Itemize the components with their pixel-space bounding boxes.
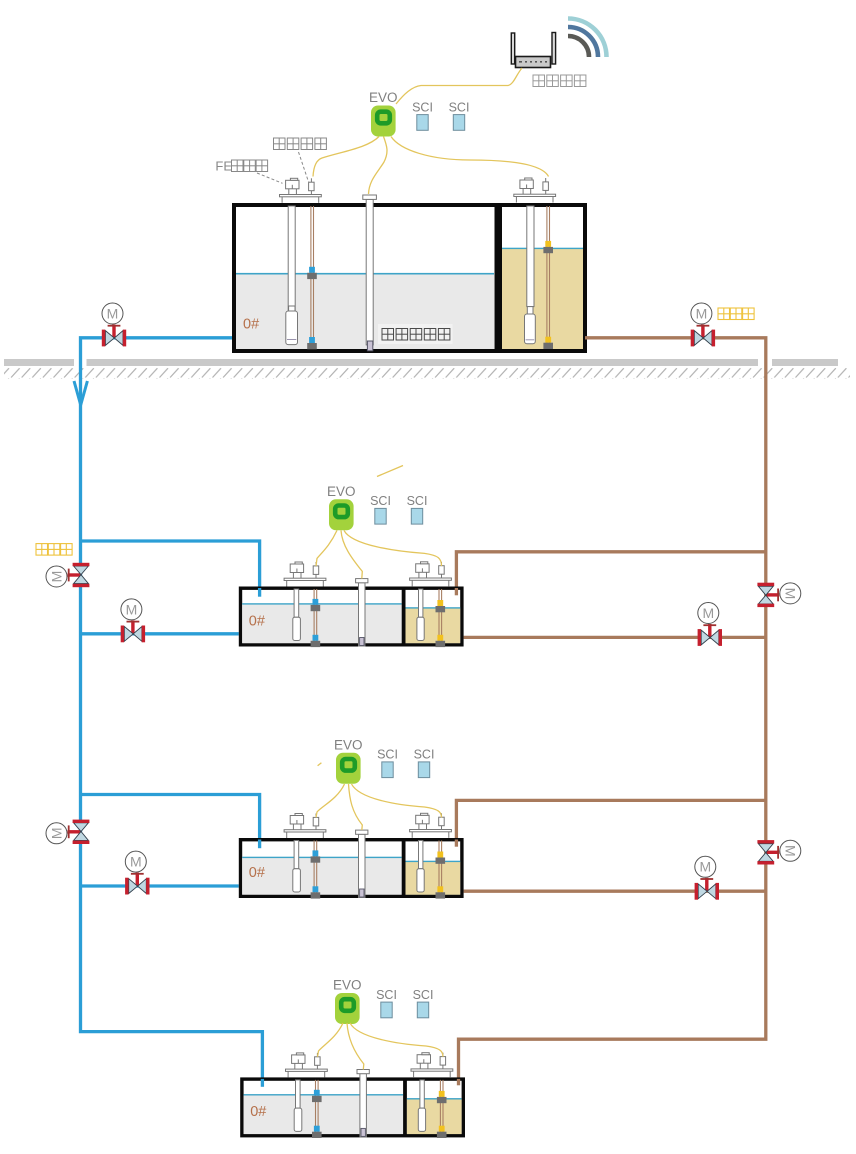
- svg-text:FE: FE: [215, 159, 232, 174]
- svg-text:0#: 0#: [249, 613, 265, 629]
- svg-text:0#: 0#: [250, 1104, 266, 1120]
- svg-text:0#: 0#: [243, 317, 259, 333]
- svg-text:0#: 0#: [249, 865, 265, 881]
